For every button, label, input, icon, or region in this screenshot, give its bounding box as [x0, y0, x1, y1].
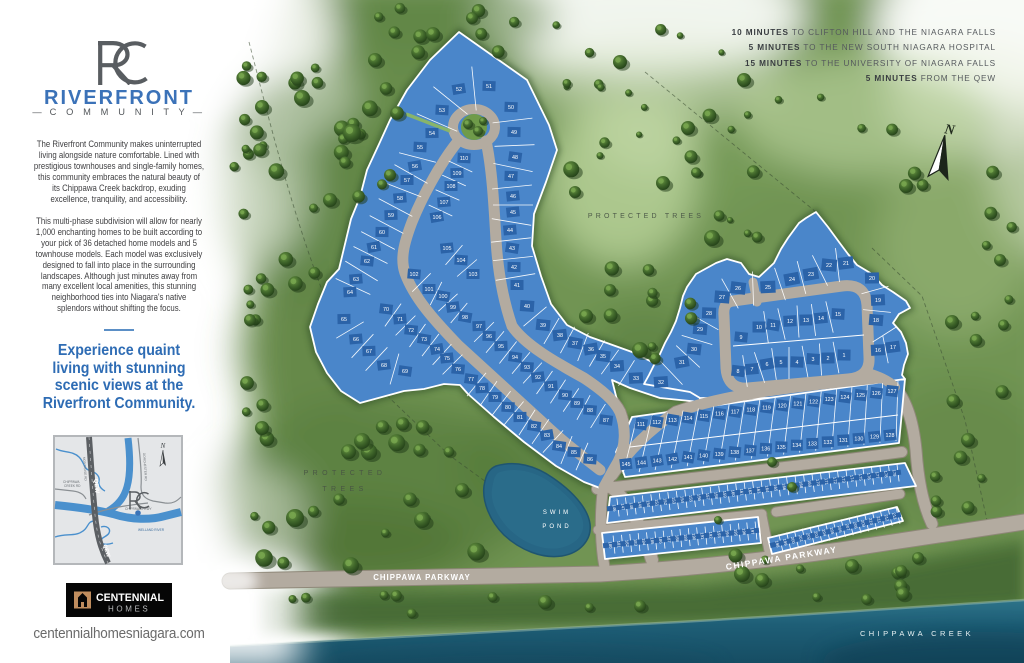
svg-text:17: 17 — [890, 345, 896, 351]
svg-text:97: 97 — [476, 324, 482, 330]
svg-text:6: 6 — [766, 362, 769, 368]
svg-text:36: 36 — [588, 347, 594, 353]
svg-text:4: 4 — [796, 360, 799, 366]
svg-text:106: 106 — [433, 215, 442, 221]
svg-text:27: 27 — [719, 295, 725, 301]
svg-text:179: 179 — [892, 469, 898, 477]
svg-text:161: 161 — [739, 488, 745, 496]
svg-text:HOMES: HOMES — [108, 605, 150, 614]
svg-text:3: 3 — [812, 357, 815, 363]
svg-text:127: 127 — [888, 389, 897, 395]
svg-text:166: 166 — [781, 483, 787, 491]
svg-text:135: 135 — [777, 445, 786, 451]
svg-text:41: 41 — [514, 283, 520, 289]
svg-text:SWIM: SWIM — [543, 510, 571, 516]
svg-text:139: 139 — [715, 452, 724, 458]
svg-text:77: 77 — [468, 377, 474, 383]
svg-text:1: 1 — [843, 353, 846, 359]
svg-text:15: 15 — [835, 312, 841, 318]
svg-text:174: 174 — [849, 474, 855, 482]
svg-text:172: 172 — [832, 477, 838, 485]
svg-text:CHIPPAWA PARKWAY: CHIPPAWA PARKWAY — [373, 573, 470, 582]
svg-text:162: 162 — [747, 487, 753, 495]
svg-text:112: 112 — [652, 420, 661, 426]
svg-text:126: 126 — [872, 391, 881, 397]
svg-text:178: 178 — [883, 470, 889, 478]
svg-text:65: 65 — [341, 317, 347, 323]
svg-text:128: 128 — [886, 433, 895, 439]
svg-text:157: 157 — [705, 492, 711, 500]
svg-text:151: 151 — [654, 499, 660, 507]
svg-text:51: 51 — [486, 84, 492, 90]
svg-text:38: 38 — [557, 333, 563, 339]
svg-text:12: 12 — [787, 319, 793, 325]
svg-text:19: 19 — [875, 298, 881, 304]
svg-text:91: 91 — [548, 384, 554, 390]
svg-text:81: 81 — [517, 415, 523, 421]
svg-text:64: 64 — [347, 290, 353, 296]
svg-text:145: 145 — [622, 462, 631, 468]
svg-text:43: 43 — [509, 246, 515, 252]
svg-text:100: 100 — [439, 294, 448, 300]
svg-text:68: 68 — [381, 363, 387, 369]
svg-text:53: 53 — [439, 108, 445, 114]
svg-text:156: 156 — [696, 494, 702, 502]
svg-text:7: 7 — [751, 367, 754, 373]
svg-text:116: 116 — [715, 412, 724, 418]
svg-text:21: 21 — [843, 261, 849, 267]
svg-text:107: 107 — [440, 200, 449, 206]
svg-text:119: 119 — [762, 406, 771, 412]
svg-text:67: 67 — [366, 349, 372, 355]
svg-text:CENTENNIAL: CENTENNIAL — [96, 592, 165, 604]
svg-text:98: 98 — [462, 315, 468, 321]
svg-text:138: 138 — [730, 450, 739, 456]
svg-text:183: 183 — [633, 539, 639, 547]
svg-text:182: 182 — [624, 540, 630, 548]
svg-text:130: 130 — [854, 436, 863, 442]
svg-text:74: 74 — [434, 347, 440, 353]
svg-text:102: 102 — [410, 272, 419, 278]
svg-text:71: 71 — [397, 317, 403, 323]
svg-text:89: 89 — [574, 401, 580, 407]
svg-text:66: 66 — [353, 337, 359, 343]
svg-text:32: 32 — [658, 380, 664, 386]
svg-text:73: 73 — [421, 337, 427, 343]
svg-text:37: 37 — [572, 341, 578, 347]
svg-text:149: 149 — [637, 501, 643, 509]
svg-text:132: 132 — [823, 440, 832, 446]
svg-text:83: 83 — [544, 433, 550, 439]
svg-text:191: 191 — [700, 532, 706, 540]
svg-text:54: 54 — [429, 131, 435, 137]
svg-text:122: 122 — [809, 399, 818, 405]
svg-text:34: 34 — [614, 364, 620, 370]
svg-text:5: 5 — [780, 360, 783, 366]
svg-text:WELLAND RIVER: WELLAND RIVER — [138, 528, 165, 532]
svg-text:114: 114 — [684, 416, 693, 422]
svg-text:44: 44 — [507, 228, 513, 234]
svg-text:110: 110 — [460, 156, 469, 162]
svg-text:105: 105 — [443, 246, 452, 252]
svg-text:159: 159 — [722, 490, 728, 498]
svg-text:49: 49 — [511, 130, 517, 136]
svg-text:14: 14 — [818, 316, 824, 322]
svg-text:72: 72 — [408, 328, 414, 334]
svg-text:170: 170 — [815, 479, 821, 487]
svg-text:153: 153 — [671, 497, 677, 505]
svg-text:115: 115 — [700, 414, 709, 420]
svg-text:56: 56 — [412, 164, 418, 170]
svg-text:196: 196 — [741, 528, 747, 536]
svg-text:22: 22 — [826, 263, 832, 269]
svg-text:185: 185 — [649, 537, 655, 545]
svg-text:193: 193 — [716, 531, 722, 539]
svg-text:70: 70 — [383, 307, 389, 313]
svg-text:PROTECTED TREES: PROTECTED TREES — [588, 213, 704, 220]
svg-text:142: 142 — [668, 457, 677, 463]
svg-text:N: N — [160, 442, 166, 450]
svg-text:141: 141 — [684, 455, 693, 461]
svg-text:24: 24 — [789, 277, 795, 283]
svg-text:147: 147 — [620, 503, 626, 511]
svg-text:99: 99 — [450, 305, 456, 311]
svg-text:16: 16 — [875, 348, 881, 354]
svg-text:82: 82 — [531, 424, 537, 430]
svg-text:104: 104 — [457, 258, 466, 264]
svg-text:140: 140 — [699, 454, 708, 460]
svg-text:124: 124 — [840, 395, 849, 401]
svg-text:150: 150 — [645, 500, 651, 508]
svg-text:131: 131 — [839, 438, 848, 444]
svg-text:94: 94 — [512, 355, 518, 361]
svg-text:117: 117 — [731, 410, 740, 416]
svg-text:186: 186 — [658, 536, 664, 544]
svg-text:188: 188 — [674, 535, 680, 543]
svg-text:129: 129 — [870, 435, 879, 441]
svg-text:168: 168 — [798, 481, 804, 489]
svg-text:192: 192 — [708, 531, 714, 539]
svg-text:46: 46 — [510, 194, 516, 200]
svg-text:90: 90 — [562, 393, 568, 399]
svg-text:194: 194 — [725, 530, 731, 538]
svg-text:59: 59 — [388, 213, 394, 219]
svg-text:33: 33 — [633, 376, 639, 382]
svg-text:78: 78 — [479, 386, 485, 392]
svg-text:35: 35 — [600, 354, 606, 360]
svg-text:47: 47 — [508, 174, 514, 180]
svg-text:28: 28 — [706, 311, 712, 317]
svg-text:120: 120 — [778, 403, 787, 409]
svg-text:108: 108 — [447, 184, 456, 190]
svg-text:152: 152 — [662, 498, 668, 506]
svg-text:195: 195 — [733, 529, 739, 537]
svg-text:40: 40 — [524, 304, 530, 310]
svg-text:190: 190 — [691, 533, 697, 541]
svg-text:10: 10 — [756, 325, 762, 331]
svg-text:123: 123 — [825, 397, 834, 403]
svg-text:62: 62 — [364, 259, 370, 265]
svg-text:11: 11 — [770, 323, 776, 329]
svg-text:55: 55 — [417, 145, 423, 151]
svg-text:PROTECTED: PROTECTED — [304, 470, 387, 477]
svg-text:143: 143 — [653, 459, 662, 465]
svg-text:79: 79 — [492, 395, 498, 401]
svg-text:175: 175 — [858, 473, 864, 481]
svg-text:80: 80 — [505, 405, 511, 411]
svg-text:155: 155 — [688, 495, 694, 503]
svg-text:96: 96 — [486, 334, 492, 340]
svg-text:48: 48 — [512, 155, 518, 161]
svg-text:133: 133 — [808, 442, 817, 448]
svg-text:136: 136 — [761, 447, 770, 453]
svg-text:180: 180 — [608, 541, 614, 549]
svg-text:POND: POND — [542, 524, 571, 530]
svg-text:39: 39 — [540, 323, 546, 329]
svg-text:146: 146 — [612, 504, 618, 512]
svg-text:58: 58 — [397, 196, 403, 202]
svg-text:163: 163 — [756, 486, 762, 494]
svg-text:95: 95 — [498, 344, 504, 350]
svg-text:137: 137 — [746, 448, 755, 454]
svg-text:50: 50 — [508, 105, 514, 111]
svg-text:154: 154 — [679, 496, 685, 504]
svg-text:29: 29 — [697, 327, 703, 333]
svg-text:148: 148 — [629, 502, 635, 510]
svg-text:52: 52 — [456, 87, 462, 93]
svg-text:60: 60 — [379, 230, 385, 236]
svg-text:189: 189 — [683, 534, 689, 542]
svg-text:165: 165 — [773, 484, 779, 492]
svg-text:187: 187 — [666, 535, 672, 543]
svg-text:93: 93 — [524, 365, 530, 371]
svg-text:2: 2 — [827, 356, 830, 362]
svg-text:109: 109 — [453, 171, 462, 177]
svg-text:88: 88 — [587, 408, 593, 414]
svg-text:8: 8 — [737, 369, 740, 375]
svg-text:61: 61 — [371, 245, 377, 251]
svg-text:111: 111 — [637, 422, 645, 428]
svg-text:25: 25 — [765, 285, 771, 291]
svg-text:103: 103 — [469, 272, 478, 278]
svg-text:184: 184 — [641, 538, 647, 546]
svg-text:84: 84 — [556, 444, 562, 450]
svg-text:197: 197 — [750, 527, 756, 535]
svg-text:18: 18 — [873, 318, 879, 324]
svg-text:20: 20 — [869, 276, 875, 282]
svg-text:31: 31 — [679, 360, 685, 366]
svg-text:42: 42 — [511, 265, 517, 271]
svg-text:177: 177 — [875, 471, 881, 479]
svg-text:57: 57 — [404, 178, 410, 184]
svg-text:75: 75 — [444, 356, 450, 362]
svg-text:113: 113 — [668, 418, 677, 424]
svg-text:181: 181 — [616, 540, 622, 548]
svg-text:CHIPPAWA CREEK: CHIPPAWA CREEK — [860, 629, 974, 638]
svg-text:45: 45 — [510, 210, 516, 216]
svg-text:26: 26 — [735, 286, 741, 292]
svg-text:121: 121 — [793, 401, 802, 407]
svg-text:158: 158 — [713, 491, 719, 499]
svg-text:169: 169 — [807, 480, 813, 488]
svg-text:125: 125 — [856, 393, 865, 399]
svg-text:85: 85 — [571, 450, 577, 456]
svg-text:176: 176 — [866, 472, 872, 480]
svg-text:63: 63 — [353, 277, 359, 283]
svg-text:69: 69 — [402, 369, 408, 375]
svg-text:101: 101 — [425, 287, 434, 293]
svg-text:30: 30 — [691, 347, 697, 353]
svg-text:76: 76 — [455, 367, 461, 373]
svg-text:87: 87 — [603, 418, 609, 424]
svg-text:CREEK RD: CREEK RD — [64, 484, 81, 488]
svg-text:144: 144 — [637, 460, 646, 466]
svg-text:86: 86 — [587, 457, 593, 463]
svg-text:9: 9 — [740, 335, 743, 341]
svg-text:164: 164 — [764, 485, 770, 493]
svg-text:23: 23 — [808, 272, 814, 278]
svg-text:13: 13 — [803, 318, 809, 324]
svg-text:134: 134 — [792, 443, 801, 449]
svg-text:TREES: TREES — [322, 486, 367, 493]
svg-text:118: 118 — [747, 408, 756, 414]
svg-text:173: 173 — [841, 476, 847, 484]
svg-text:171: 171 — [824, 478, 830, 486]
svg-text:160: 160 — [730, 489, 736, 497]
svg-text:92: 92 — [535, 375, 541, 381]
